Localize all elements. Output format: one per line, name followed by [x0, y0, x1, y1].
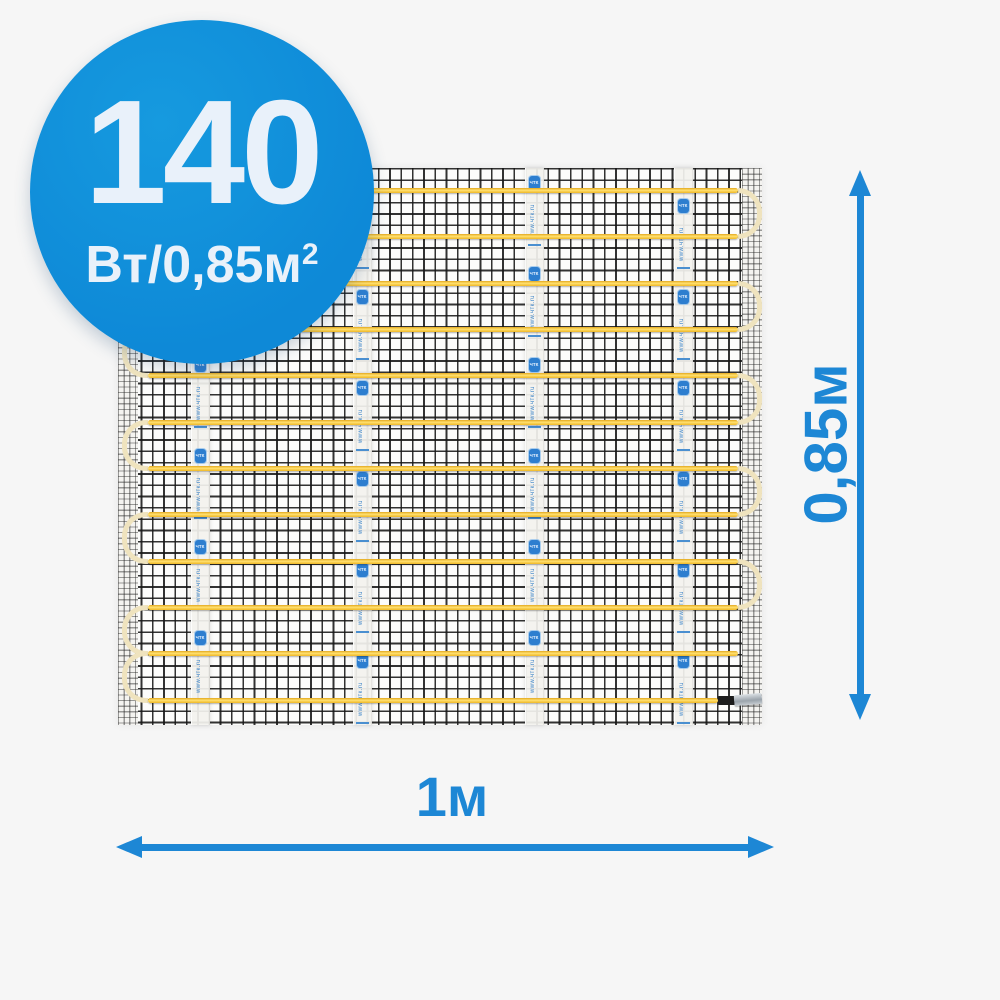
brand-stamp-icon: ЧТК [357, 563, 368, 577]
brand-stamp-icon: ЧТК [195, 449, 206, 463]
splice-sleeve [718, 696, 735, 705]
tape-website-text: www.чтк.ru [679, 581, 688, 625]
brand-stamp-icon: ЧТК [678, 654, 689, 668]
brand-stamp-icon: ЧТК [529, 631, 540, 645]
tape-mark [356, 358, 369, 360]
tape-mark [528, 244, 541, 246]
brand-stamp-icon: ЧТК [529, 358, 540, 372]
heating-cable-run [148, 698, 718, 703]
arrow-down-icon [849, 694, 871, 720]
tape-website-text: www.чтк.ru [196, 558, 205, 602]
tape-mark [528, 517, 541, 519]
heating-cable-run [148, 373, 738, 378]
tape-website-text: www.чтк.ru [679, 217, 688, 261]
brand-stamp-icon: ЧТК [195, 540, 206, 554]
brand-stamp-icon: ЧТК [357, 381, 368, 395]
arrow-shaft [132, 844, 758, 851]
heating-cable-run [148, 651, 738, 656]
tape-mark [677, 358, 690, 360]
brand-stamp-icon: ЧТК [195, 631, 206, 645]
tape-mark [356, 722, 369, 724]
tape-mark [677, 722, 690, 724]
width-dimension-arrow [116, 836, 774, 858]
height-dimension-label: 0,85м [792, 363, 861, 524]
brand-stamp-icon: ЧТК [357, 654, 368, 668]
tape-website-text: www.чтк.ru [530, 194, 539, 238]
heating-cable-run [148, 559, 738, 564]
tape-mark [677, 540, 690, 542]
brand-stamp-icon: ЧТК [678, 563, 689, 577]
tape-website-text: www.чтк.ru [530, 467, 539, 511]
product-image: ЧТКwww.чтк.ruЧТКwww.чтк.ruЧТКwww.чтк.ruЧ… [0, 0, 1000, 1000]
brand-stamp-icon: ЧТК [678, 472, 689, 486]
branding-tape: ЧТКwww.чтк.ruЧТКwww.чтк.ruЧТКwww.чтк.ruЧ… [525, 168, 544, 725]
brand-stamp-icon: ЧТК [357, 472, 368, 486]
tape-website-text: www.чтк.ru [196, 376, 205, 420]
brand-stamp-icon: ЧТК [529, 540, 540, 554]
tape-mark [194, 517, 207, 519]
heating-cable-run [148, 466, 738, 471]
tape-website-text: www.чтк.ru [530, 558, 539, 602]
tape-mark [528, 426, 541, 428]
tape-mark [356, 631, 369, 633]
power-unit-superscript: 2 [302, 238, 319, 271]
tape-mark [677, 449, 690, 451]
tape-website-text: www.чтк.ru [358, 581, 367, 625]
tape-mark [677, 267, 690, 269]
tape-mark [356, 540, 369, 542]
power-badge: 140 Вт/0,85м2 [30, 20, 374, 364]
tape-website-text: www.чтк.ru [530, 285, 539, 329]
power-value: 140 [85, 79, 320, 227]
arrow-right-icon [748, 836, 774, 858]
brand-stamp-icon: ЧТК [357, 290, 368, 304]
tape-website-text: www.чтк.ru [679, 672, 688, 716]
power-unit: Вт/0,85м2 [85, 239, 318, 291]
brand-stamp-icon: ЧТК [678, 290, 689, 304]
tape-mark [356, 267, 369, 269]
heating-cable-run [148, 420, 738, 425]
tape-mark [356, 449, 369, 451]
tape-website-text: www.чтк.ru [196, 467, 205, 511]
tape-mark [677, 631, 690, 633]
tape-website-text: www.чтк.ru [530, 376, 539, 420]
heating-cable-run [148, 512, 738, 517]
brand-stamp-icon: ЧТК [529, 449, 540, 463]
brand-stamp-icon: ЧТК [678, 381, 689, 395]
brand-stamp-icon: ЧТК [678, 199, 689, 213]
brand-stamp-icon: ЧТК [529, 267, 540, 281]
heating-cable-run [148, 605, 738, 610]
branding-tape: ЧТКwww.чтк.ruЧТКwww.чтк.ruЧТКwww.чтк.ruЧ… [674, 168, 693, 725]
tape-website-text: www.чтк.ru [358, 672, 367, 716]
width-dimension-label: 1м [416, 764, 489, 829]
tape-mark [528, 335, 541, 337]
tape-mark [194, 426, 207, 428]
mesh-selvage-right [742, 168, 762, 725]
